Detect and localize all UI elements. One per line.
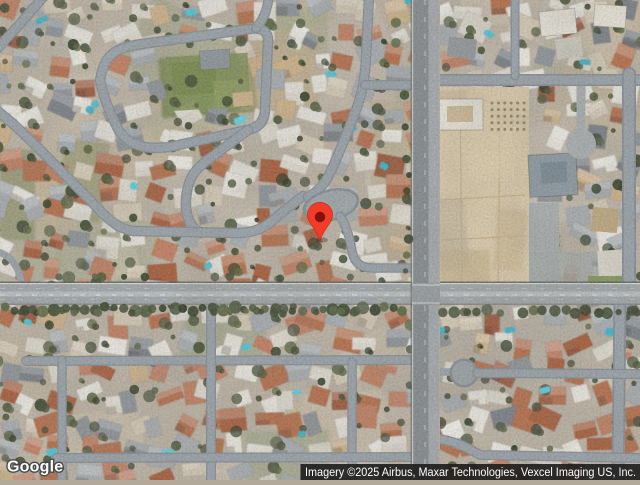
svg-text:Google: Google	[7, 459, 63, 476]
svg-text:Imagery ©2025 Airbus, Maxar Te: Imagery ©2025 Airbus, Maxar Technologies…	[305, 465, 636, 479]
